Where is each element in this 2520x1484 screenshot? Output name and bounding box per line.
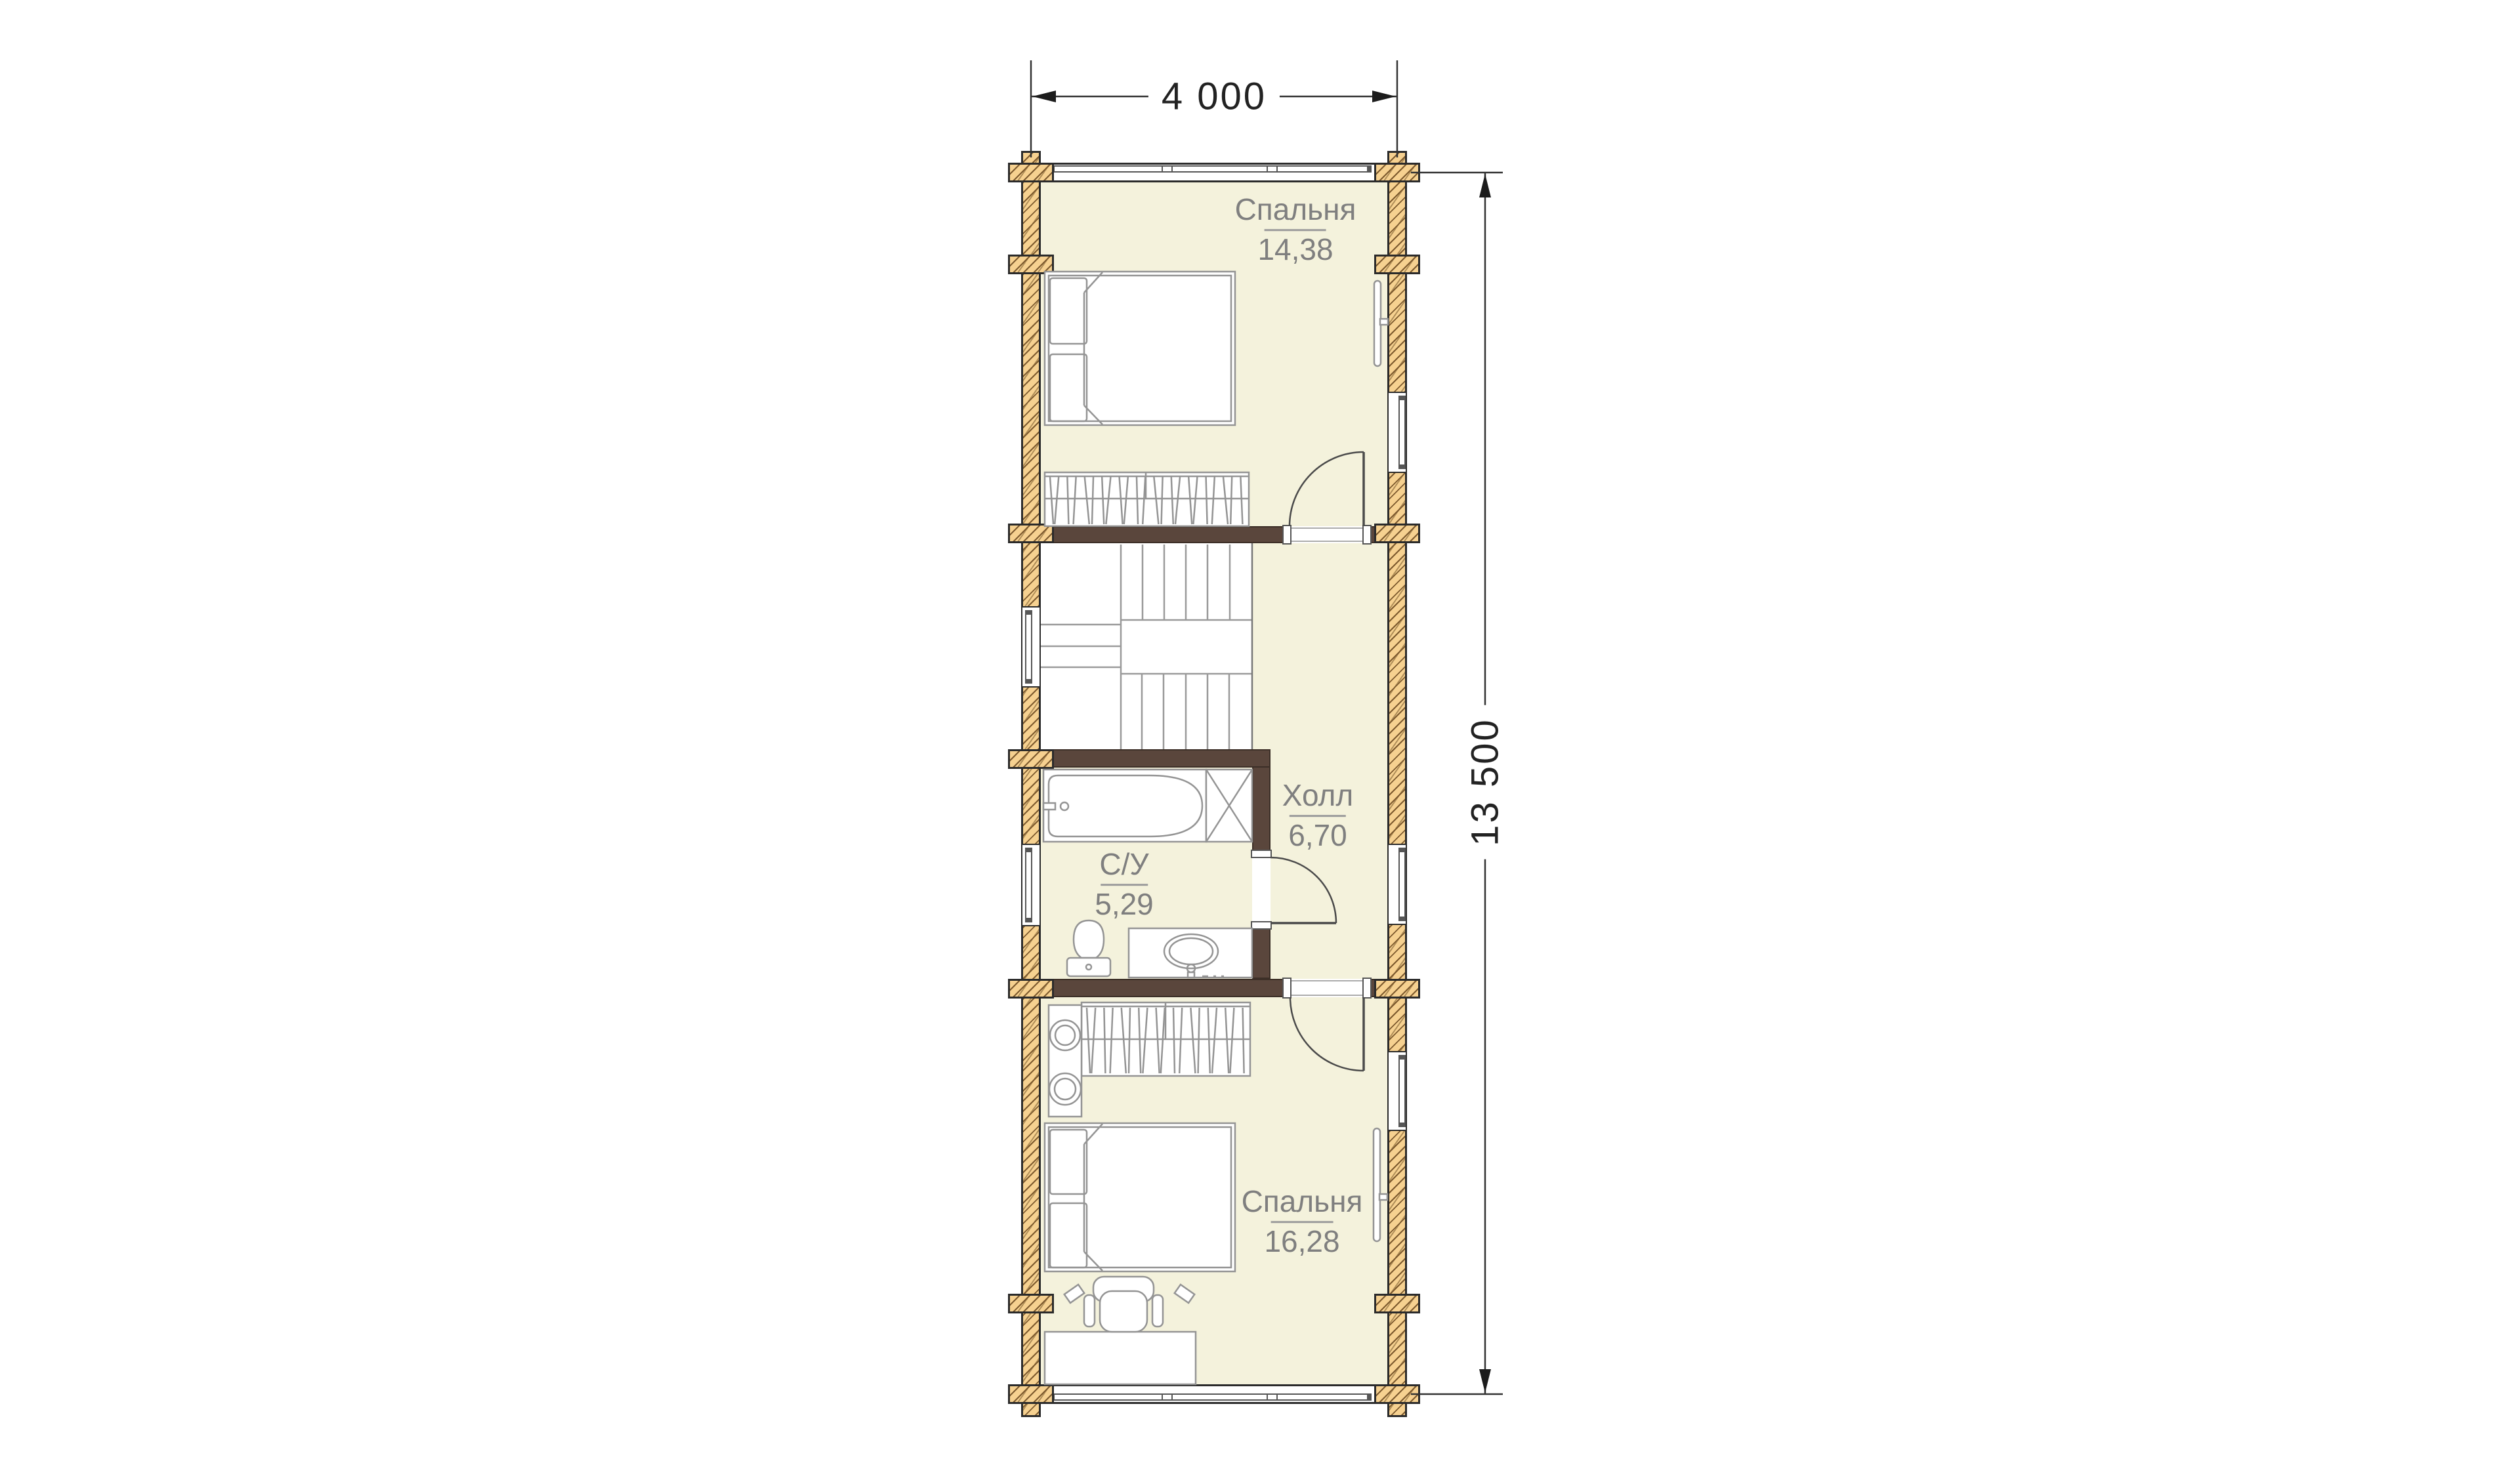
door-bathroom — [1270, 857, 1336, 923]
double-bed-bottom — [1045, 1123, 1235, 1271]
room-area: 14,38 — [1235, 234, 1356, 266]
room-name: Спальня — [1235, 194, 1356, 225]
label-bedroom-bottom: Спальня 16,28 — [1242, 1185, 1363, 1258]
sink-vanity — [1129, 928, 1252, 978]
label-rule — [1290, 815, 1346, 817]
room-area: 6,70 — [1282, 820, 1353, 852]
appliance-stack — [1049, 1005, 1081, 1117]
floor-plan-page: { "plan_title": "Second floor plan (log … — [0, 0, 2520, 1484]
desk — [1045, 1332, 1196, 1384]
dimension-height-text: 13 500 — [1463, 705, 1507, 859]
window-casement-bedroom-top — [1374, 281, 1388, 366]
label-rule — [1271, 1222, 1333, 1224]
label-rule — [1101, 884, 1148, 886]
office-chair — [1064, 1277, 1194, 1332]
room-name: С/У — [1095, 848, 1154, 880]
door-bedroom-top — [1290, 452, 1364, 526]
label-bathroom: С/У 5,29 — [1095, 848, 1154, 920]
double-bed-top — [1045, 272, 1235, 425]
door-bedroom-bottom — [1290, 997, 1364, 1071]
label-rule — [1265, 230, 1326, 232]
stair-flight-upper — [1143, 545, 1230, 620]
room-name: Спальня — [1242, 1185, 1363, 1217]
shower-tray — [1206, 770, 1252, 842]
door-thresholds — [1291, 528, 1362, 995]
stair-flight-lower — [1142, 674, 1229, 749]
room-area: 5,29 — [1095, 889, 1154, 920]
bathtub — [1043, 770, 1206, 842]
toilet — [1067, 920, 1110, 976]
label-hall: Холл 6,70 — [1282, 779, 1353, 852]
wardrobe-top — [1045, 472, 1249, 526]
window-casement-bedroom-bottom — [1374, 1128, 1387, 1241]
staircase — [1041, 543, 1252, 749]
label-bedroom-top: Спальня 14,38 — [1235, 194, 1356, 266]
room-area: 16,28 — [1242, 1226, 1363, 1258]
room-name: Холл — [1282, 779, 1353, 811]
dimension-width-text: 4 000 — [1148, 75, 1280, 119]
wardrobe-bottom — [1081, 1002, 1250, 1076]
